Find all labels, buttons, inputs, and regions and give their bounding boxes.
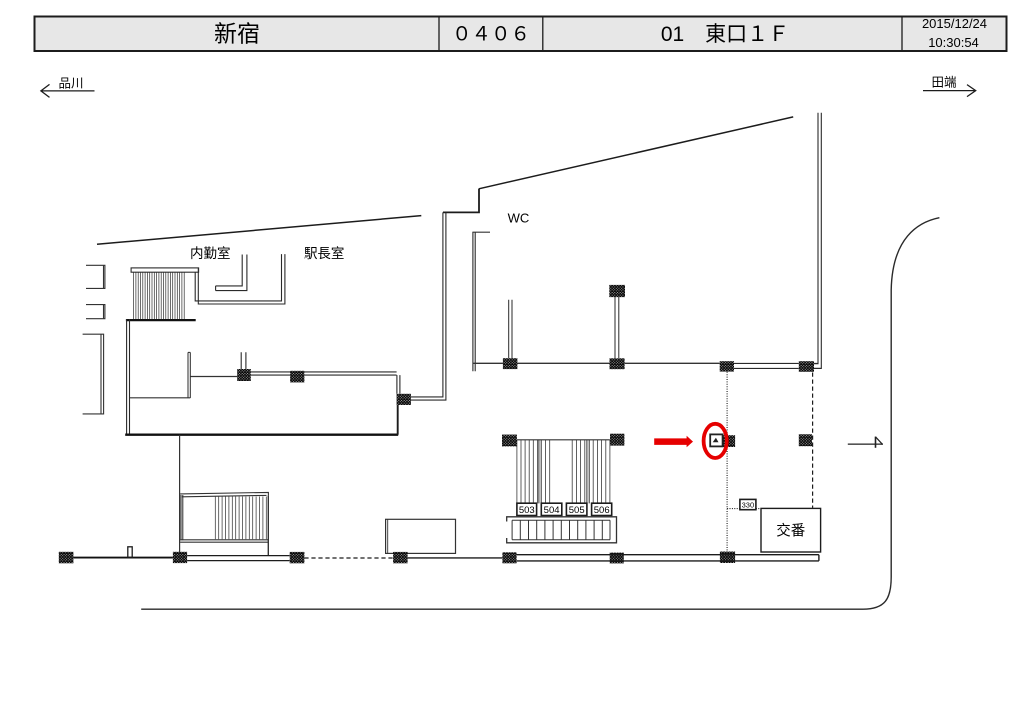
svg-text:田端: 田端 — [931, 76, 956, 90]
svg-text:０４０６: ０４０６ — [452, 24, 530, 46]
svg-text:内勤室: 内勤室 — [190, 245, 231, 261]
svg-text:2015/12/24: 2015/12/24 — [922, 16, 987, 31]
svg-text:01 東口１Ｆ: 01 東口１Ｆ — [661, 23, 789, 46]
svg-text:品川: 品川 — [58, 77, 83, 91]
svg-text:新宿: 新宿 — [214, 21, 260, 47]
svg-text:506: 506 — [594, 505, 610, 516]
svg-text:WC: WC — [508, 211, 530, 226]
svg-text:330: 330 — [742, 501, 755, 510]
svg-text:交番: 交番 — [776, 522, 805, 540]
svg-text:駅長室: 駅長室 — [304, 245, 345, 261]
svg-text:504: 504 — [544, 505, 560, 516]
svg-text:503: 503 — [519, 505, 535, 516]
svg-text:10:30:54: 10:30:54 — [928, 35, 979, 50]
svg-text:505: 505 — [569, 505, 585, 516]
